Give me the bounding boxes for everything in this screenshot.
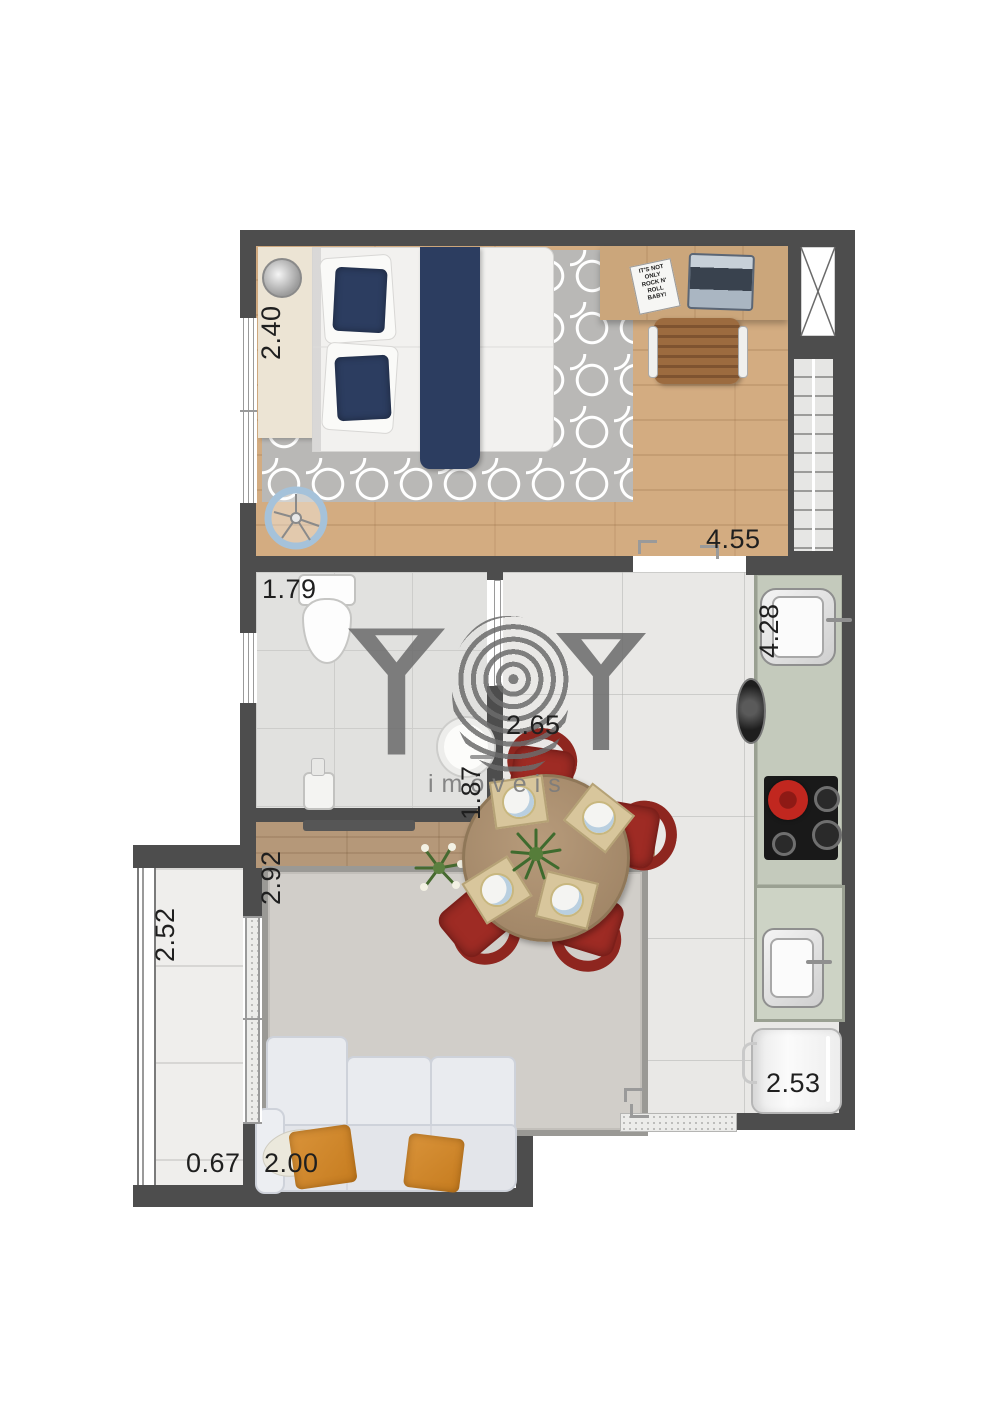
watermark-letter-y — [348, 628, 445, 755]
laundry-sink-basin — [770, 938, 814, 998]
ceiling-fan-icon — [264, 486, 328, 550]
watermark-subtitle: imóveis — [428, 770, 569, 799]
balcony-sliding-door — [243, 916, 262, 1124]
plate — [575, 794, 623, 842]
kitchen-faucet — [826, 618, 852, 622]
plate — [546, 879, 587, 920]
laptop — [687, 253, 755, 311]
wall — [240, 703, 256, 868]
service-door-swing — [624, 1088, 643, 1102]
dimension-kitchen-length: 4.28 — [754, 568, 785, 658]
wall — [133, 845, 256, 868]
dimension-bathroom-depth: 1.87 — [456, 740, 487, 820]
bed-pillow-navy-2 — [334, 355, 391, 422]
dimension-bathroom-width: 1.79 — [262, 574, 317, 605]
desk-chair-armrest-right — [738, 326, 748, 378]
wall — [240, 230, 256, 318]
bedroom-door-swing — [638, 540, 657, 554]
cooktop-pot — [768, 780, 808, 820]
counter-vase — [736, 678, 766, 744]
wall — [240, 230, 855, 246]
wardrobe-rail — [812, 359, 815, 551]
tv-bar — [303, 820, 415, 831]
cooktop-burner-1 — [814, 786, 840, 812]
bathroom-window — [240, 633, 257, 703]
bedroom-door-opening — [633, 556, 746, 572]
watermark-brand: YBY — [0, 0, 1, 1]
dimension-bedroom-length: 4.55 — [706, 524, 761, 555]
dimension-dining-width: 2.65 — [506, 710, 561, 741]
watermark-letter-y2 — [556, 628, 646, 755]
desk-chair-armrest-left — [648, 326, 658, 378]
sofa-pillow-orange-2 — [403, 1133, 465, 1193]
shaft-x-box — [799, 245, 837, 338]
dimension-living-width: 2.00 — [264, 1148, 319, 1179]
sofa-back-cushion-2 — [346, 1056, 432, 1132]
bedroom-window — [240, 318, 257, 503]
dimension-service-width: 2.53 — [766, 1068, 821, 1099]
washer-handle — [742, 1042, 757, 1084]
bed-pillow-navy-1 — [332, 267, 387, 334]
dimension-balcony-length: 2.52 — [150, 872, 181, 962]
washer-trim — [826, 1036, 830, 1102]
dimension-hall-length: 2.92 — [256, 815, 287, 905]
cooktop-burner-3 — [772, 832, 796, 856]
cooktop-burner-2 — [812, 820, 842, 850]
laundry-faucet — [806, 960, 832, 964]
wall — [240, 556, 633, 572]
dimension-balcony-width: 0.67 — [186, 1148, 241, 1179]
table-centerpiece-plant — [508, 826, 564, 882]
desk-chair — [654, 318, 740, 384]
floor-plan: IT'S NOT ONLY ROCK N' ROLL BABY! — [0, 0, 1000, 1426]
sofa-back-cushion-3 — [430, 1056, 516, 1132]
trash-bin — [303, 772, 335, 810]
wall — [735, 1113, 855, 1130]
trash-bin-lid — [311, 758, 325, 776]
service-door-swing — [630, 1104, 649, 1118]
dimension-bedroom-width: 2.40 — [256, 270, 287, 360]
bed-runner — [420, 247, 480, 469]
